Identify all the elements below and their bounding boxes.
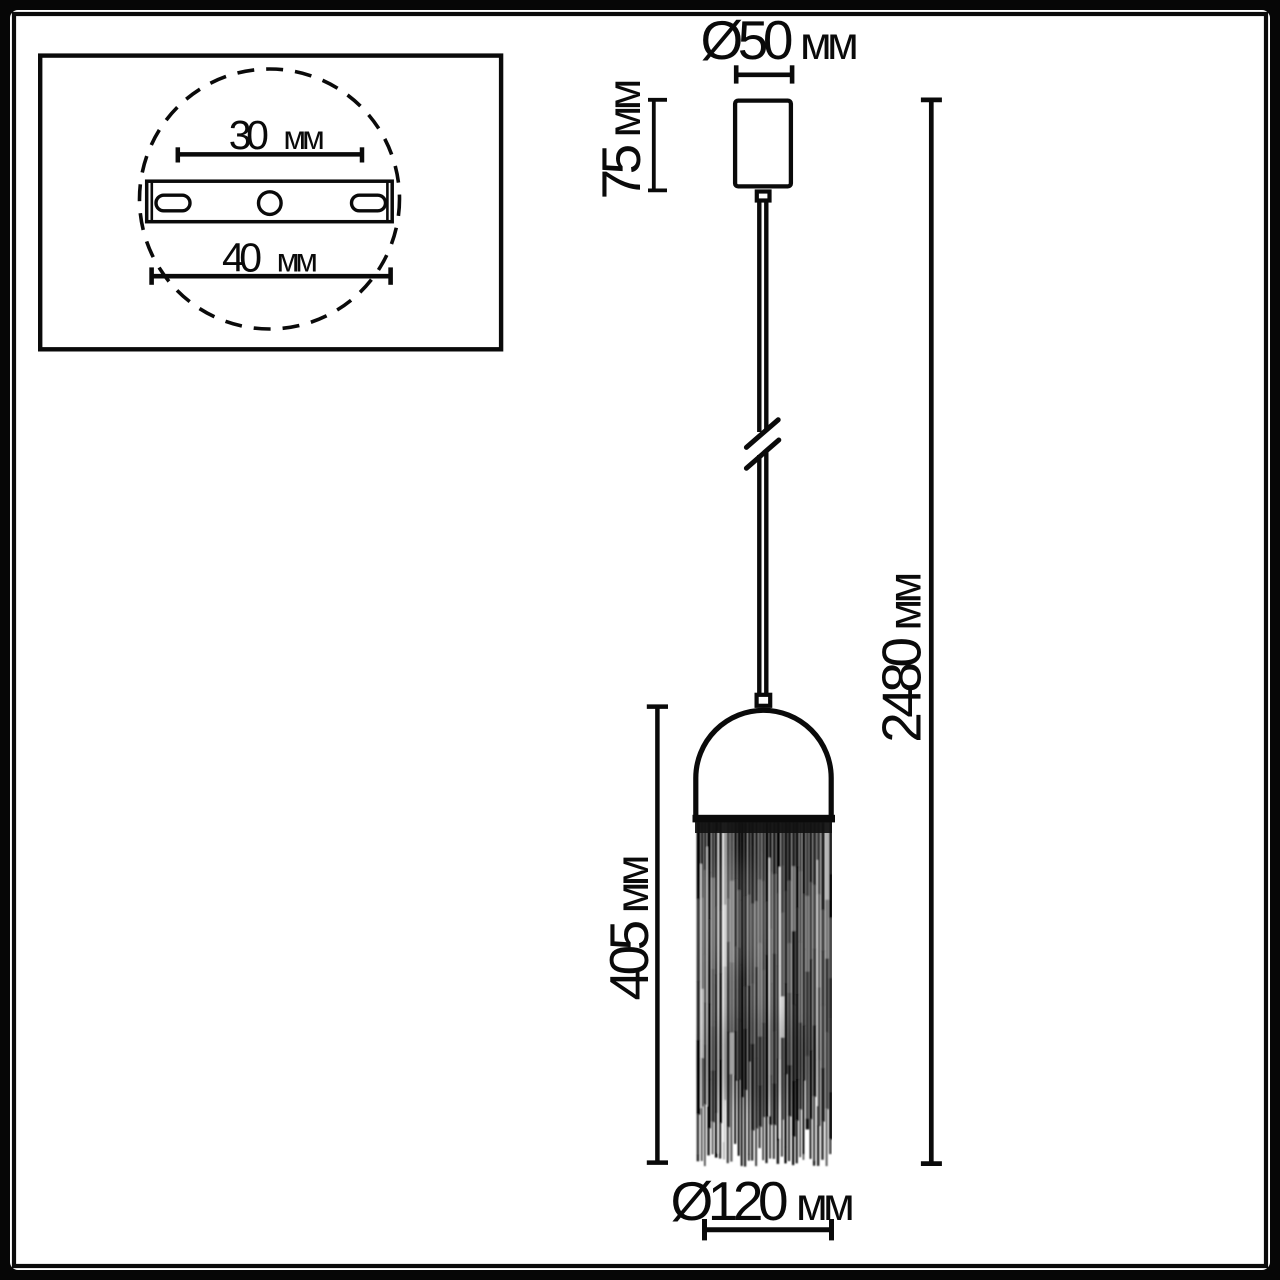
svg-text:2480мм: 2480мм: [871, 574, 933, 742]
svg-text:Ø50мм: Ø50мм: [701, 9, 857, 71]
svg-text:405мм: 405мм: [598, 857, 660, 1000]
svg-text:Ø120мм: Ø120мм: [671, 1170, 853, 1232]
